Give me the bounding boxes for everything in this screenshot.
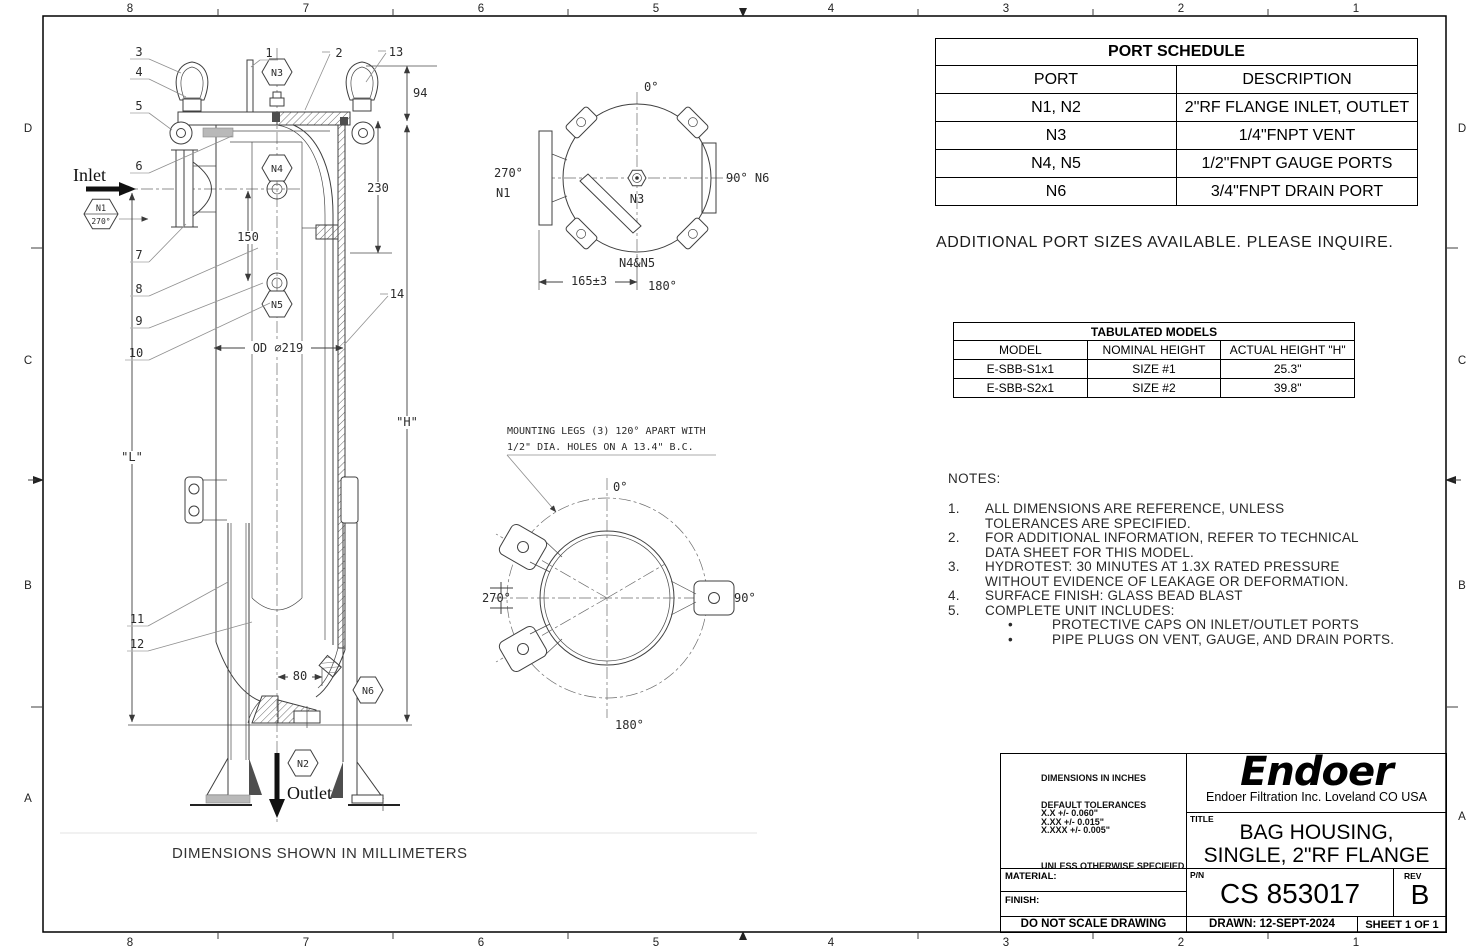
do-not-scale-note: DO NOT SCALE DRAWING <box>1001 917 1187 933</box>
zone-col-bot-3: 3 <box>1003 937 1009 948</box>
company-logo: Endoer <box>1187 752 1446 792</box>
balloon-12: 12 <box>130 637 144 651</box>
company-address: Endoer Filtration Inc. Loveland CO USA <box>1187 790 1446 804</box>
svg-text:N2: N2 <box>297 759 309 770</box>
zone-row-left-d: D <box>24 123 32 135</box>
zone-row-right-b: B <box>1458 580 1466 592</box>
zone-col-bot-4: 4 <box>828 937 835 948</box>
table-row: N6 3/4"FNPT DRAIN PORT <box>936 178 1418 206</box>
zone-row-left-a: A <box>24 793 32 805</box>
balloon-1: 1 <box>265 46 272 60</box>
port-schedule-header-port: PORT <box>936 66 1177 94</box>
title-block: DIMENSIONS IN INCHES DEFAULT TOLERANCES … <box>1000 753 1447 933</box>
zone-row-left-c: C <box>24 355 32 367</box>
pn-label: P/N <box>1190 870 1204 880</box>
zone-col-bot-6: 6 <box>478 937 484 948</box>
material-field: MATERIAL: <box>1001 869 1187 892</box>
leg-top-left <box>497 522 549 571</box>
description-cell: 1/2"FNPT GAUGE PORTS <box>1177 150 1418 178</box>
top-view-deg180: 180° <box>648 279 677 293</box>
port-cell: N6 <box>936 178 1177 206</box>
table-row: E-SBB-S1x1 SIZE #1 25.3" <box>954 360 1355 379</box>
zone-row-right-a: A <box>1458 811 1466 823</box>
drawn-date: DRAWN: 12-SEPT-2024 <box>1187 917 1358 933</box>
model-cell: E-SBB-S1x1 <box>954 360 1088 379</box>
zone-col-top-1: 1 <box>1353 3 1359 15</box>
tabulated-models-table: TABULATED MODELS MODEL NOMINAL HEIGHT AC… <box>953 322 1355 398</box>
balloon-9: 9 <box>135 314 142 328</box>
balloon-10: 10 <box>129 346 143 360</box>
balloon-3: 3 <box>135 45 142 59</box>
nominal-height-header: NOMINAL HEIGHT <box>1087 341 1221 360</box>
sheet-number: SHEET 1 OF 1 <box>1358 917 1446 933</box>
company-logo-cell: Endoer Endoer Filtration Inc. Loveland C… <box>1187 754 1446 813</box>
finish-field: FINISH: <box>1001 892 1187 917</box>
outlet-label: Outlet <box>287 783 332 803</box>
zone-row-right-c: C <box>1458 355 1466 367</box>
dim-150: 150 <box>234 191 262 281</box>
leg-bottom-left <box>497 624 549 673</box>
top-view-deg90-n6: 90° N6 <box>726 171 769 185</box>
svg-text:94: 94 <box>413 86 427 100</box>
zone-col-bot-1: 1 <box>1353 937 1359 948</box>
height-cell: 39.8" <box>1221 379 1355 398</box>
svg-text:230: 230 <box>367 181 389 195</box>
part-number: CS 853017 <box>1187 878 1393 910</box>
svg-text:165±3: 165±3 <box>571 274 607 288</box>
tolerance-xxxx: X.XXX +/- 0.005" <box>1041 826 1186 835</box>
bottom-view-deg270: 270° <box>482 591 511 605</box>
port-flag-n3: N3 <box>262 59 292 85</box>
bottom-view-deg180: 180° <box>615 718 644 732</box>
balloon-6: 6 <box>135 159 142 173</box>
zone-col-top-8: 8 <box>127 3 133 15</box>
balloon-2: 2 <box>335 46 342 60</box>
port-cell: N1, N2 <box>936 94 1177 122</box>
balloon-11: 11 <box>130 612 144 626</box>
additional-ports-note: ADDITIONAL PORT SIZES AVAILABLE. PLEASE … <box>936 234 1436 252</box>
notes-title: NOTES: <box>948 471 1426 486</box>
top-view-n1: N1 <box>496 186 510 200</box>
port-flag-n1: N1 270° <box>84 199 148 228</box>
title-label: TITLE <box>1190 814 1214 824</box>
inlet-flange-top <box>539 131 552 225</box>
inlet-label: Inlet <box>73 165 106 185</box>
dim-h: "H" <box>395 125 419 722</box>
svg-text:N6: N6 <box>362 686 374 697</box>
mounting-legs-note-2: 1/2" DIA. HOLES ON A 13.4" B.C. <box>507 442 694 453</box>
top-view-deg0: 0° <box>644 80 658 94</box>
bottom-view-deg0: 0° <box>613 480 627 494</box>
zone-col-top-4: 4 <box>828 3 835 15</box>
svg-text:270°: 270° <box>91 217 110 226</box>
drawing-title-line2: SINGLE, 2"RF FLANGE <box>1187 844 1446 867</box>
top-view-n4n5: N4&N5 <box>619 256 655 270</box>
table-row: N3 1/4"FNPT VENT <box>936 122 1418 150</box>
zone-col-bot-8: 8 <box>127 937 133 948</box>
tabulated-models-title: TABULATED MODELS <box>954 323 1355 341</box>
svg-text:150: 150 <box>237 230 259 244</box>
tolerance-box: DIMENSIONS IN INCHES DEFAULT TOLERANCES … <box>1001 754 1187 869</box>
zone-row-right-d: D <box>1458 123 1466 135</box>
eye-bolt-right <box>346 62 378 111</box>
balloon-4: 4 <box>135 65 142 79</box>
note-sub-item: •PROTECTIVE CAPS ON INLET/OUTLET PORTS <box>948 618 1426 633</box>
dim-80: 80 <box>278 668 322 686</box>
port-cell: N3 <box>936 122 1177 150</box>
top-view: 165±3 0° 270° N1 90° N6 N3 N4&N5 180° <box>494 80 769 293</box>
balloon-13: 13 <box>389 45 403 59</box>
zone-col-top-5: 5 <box>653 3 659 15</box>
bullet-glyph: • <box>1008 633 1052 648</box>
dims-in-inches: DIMENSIONS IN INCHES <box>1041 774 1186 783</box>
size-cell: SIZE #1 <box>1087 360 1221 379</box>
port-cell: N4, N5 <box>936 150 1177 178</box>
port-flag-n2: N2 <box>288 750 318 776</box>
note-item: 4.SURFACE FINISH: GLASS BEAD BLAST <box>948 589 1426 604</box>
port-schedule-table: PORT SCHEDULE PORT DESCRIPTION N1, N2 2"… <box>935 38 1418 205</box>
balloon-8: 8 <box>135 282 142 296</box>
balloon-14: 14 <box>390 287 404 301</box>
top-view-deg270: 270° <box>494 166 523 180</box>
notes-section: NOTES: 1.ALL DIMENSIONS ARE REFERENCE, U… <box>948 471 1426 647</box>
outlet-arrow <box>269 799 285 818</box>
model-cell: E-SBB-S2x1 <box>954 379 1088 398</box>
bottom-view: MOUNTING LEGS (3) 120° APART WITH 1/2" D… <box>482 426 756 732</box>
svg-text:N3: N3 <box>271 68 283 79</box>
zone-col-bot-7: 7 <box>303 937 309 948</box>
svg-text:N5: N5 <box>271 300 283 311</box>
description-cell: 3/4"FNPT DRAIN PORT <box>1177 178 1418 206</box>
note-item: 5.COMPLETE UNIT INCLUDES: <box>948 604 1426 619</box>
dim-od219: OD ∅219 <box>214 341 343 355</box>
model-header: MODEL <box>954 341 1088 360</box>
table-row: E-SBB-S2x1 SIZE #2 39.8" <box>954 379 1355 398</box>
top-view-n3: N3 <box>630 192 644 206</box>
note-sub-item: •PIPE PLUGS ON VENT, GAUGE, AND DRAIN PO… <box>948 633 1426 648</box>
bullet-glyph: • <box>1008 618 1052 633</box>
inlet-flange <box>171 150 216 227</box>
note-item: 1.ALL DIMENSIONS ARE REFERENCE, UNLESS T… <box>948 502 1426 531</box>
rev-label: REV <box>1404 871 1421 881</box>
svg-text:OD ∅219: OD ∅219 <box>253 341 304 355</box>
svg-text:"L": "L" <box>121 450 143 464</box>
bottom-view-deg90: 90° <box>734 591 756 605</box>
port-schedule-header-description: DESCRIPTION <box>1177 66 1418 94</box>
note-item: 3.HYDROTEST: 30 MINUTES AT 1.3X RATED PR… <box>948 560 1426 589</box>
mounting-legs-note-1: MOUNTING LEGS (3) 120° APART WITH <box>507 426 706 437</box>
description-cell: 1/4"FNPT VENT <box>1177 122 1418 150</box>
svg-text:N4: N4 <box>271 164 283 175</box>
units-note: DIMENSIONS SHOWN IN MILLIMETERS <box>172 845 572 862</box>
svg-text:80: 80 <box>293 669 307 683</box>
revision-cell: REV B <box>1394 869 1446 917</box>
note-item: 2.FOR ADDITIONAL INFORMATION, REFER TO T… <box>948 531 1426 560</box>
eye-bolt-left <box>176 62 208 111</box>
port-schedule-title: PORT SCHEDULE <box>936 39 1418 66</box>
side-view: Inlet Outlet N3 N4 N5 N6 N2 N1 <box>73 45 437 822</box>
dim-165: 165±3 <box>539 274 637 288</box>
revision: B <box>1394 879 1446 911</box>
zone-col-top-3: 3 <box>1003 3 1009 15</box>
inlet-arrow <box>119 182 136 196</box>
zone-col-top-7: 7 <box>303 3 309 15</box>
port-flag-n5: N5 <box>262 291 292 317</box>
engineering-drawing-sheet: { "border": { "cols": ["8","7","6","5","… <box>0 0 1478 948</box>
table-row: N1, N2 2"RF FLANGE INLET, OUTLET <box>936 94 1418 122</box>
zone-col-top-6: 6 <box>478 3 484 15</box>
height-cell: 25.3" <box>1221 360 1355 379</box>
svg-text:"H": "H" <box>396 415 418 429</box>
zone-row-left-b: B <box>24 580 32 592</box>
part-number-cell: P/N CS 853017 <box>1187 869 1394 917</box>
table-row: N4, N5 1/2"FNPT GAUGE PORTS <box>936 150 1418 178</box>
vent-tube <box>247 60 253 112</box>
balloon-5: 5 <box>135 99 142 113</box>
zone-col-bot-5: 5 <box>653 937 659 948</box>
drain-stub <box>319 655 341 677</box>
port-flag-n4: N4 <box>262 155 292 181</box>
svg-text:N1: N1 <box>96 204 106 214</box>
drawing-title-line1: BAG HOUSING, <box>1187 821 1446 844</box>
description-cell: 2"RF FLANGE INLET, OUTLET <box>1177 94 1418 122</box>
actual-height-header: ACTUAL HEIGHT "H" <box>1221 341 1355 360</box>
balloon-7: 7 <box>135 248 142 262</box>
size-cell: SIZE #2 <box>1087 379 1221 398</box>
drawing-title-cell: TITLE BAG HOUSING, SINGLE, 2"RF FLANGE <box>1187 813 1446 869</box>
zone-col-bot-2: 2 <box>1178 937 1184 948</box>
zone-col-top-2: 2 <box>1178 3 1184 15</box>
